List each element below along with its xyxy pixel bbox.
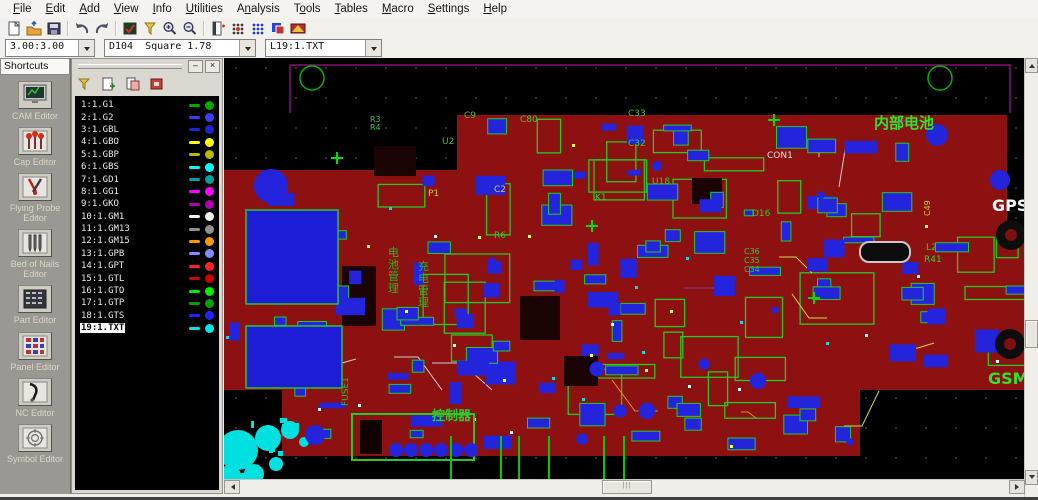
nc-editor-icon	[18, 378, 52, 406]
highlight-layer-icon[interactable]	[75, 76, 94, 92]
arrow-up-icon	[1029, 61, 1035, 68]
layer-draw-color-swatch[interactable]	[189, 265, 200, 268]
layer-row[interactable]: 15:1.GTL	[75, 272, 219, 284]
pcb-label: 充电管理	[418, 259, 429, 309]
scroll-left-button[interactable]	[224, 480, 240, 494]
layer-name[interactable]: 19:1.TXT	[80, 323, 125, 333]
menu-bar: FileEditAddViewInfoUtilitiesAnalysisTool…	[0, 0, 1038, 19]
shortcuts-sidebar: Shortcuts CAM Editor Cap Editor Flying P…	[0, 58, 71, 494]
menu-item[interactable]: Add	[72, 1, 106, 17]
layer-draw-color-swatch[interactable]	[189, 116, 200, 119]
layer-name[interactable]: 13:1.GPB	[80, 249, 125, 259]
layer-draw-color-swatch[interactable]	[189, 190, 200, 193]
sidebar-item-label: CAM Editor	[12, 111, 58, 121]
layer-visibility-dot[interactable]	[205, 299, 214, 308]
layers-panel-titlebar[interactable]: – ×	[72, 59, 222, 73]
cam-editor-icon	[18, 81, 52, 109]
active-layer-value[interactable]: L19:1.TXT	[266, 40, 365, 56]
layer-row[interactable]: 10:1.GM1	[75, 211, 219, 223]
layer-row[interactable]: 5:1.GBP	[75, 149, 219, 161]
menu-item[interactable]: Settings	[421, 1, 477, 17]
sidebar-item-bed-of-nails-editor[interactable]: Bed of Nails Editor	[0, 229, 70, 279]
layer-draw-color-swatch[interactable]	[189, 166, 200, 169]
layer-visibility-dot[interactable]	[205, 200, 214, 209]
chevron-down-icon	[84, 47, 90, 54]
pcb-label: U18	[652, 177, 670, 187]
menu-item[interactable]: Tables	[328, 1, 375, 17]
layer-name[interactable]: 15:1.GTL	[80, 274, 125, 284]
arrow-down-icon	[1029, 475, 1035, 482]
pcb-label: L2	[926, 243, 937, 253]
menu-item[interactable]: Info	[146, 1, 179, 17]
layer-name[interactable]: 1:1.G1	[80, 100, 115, 110]
pcb-label: CON1	[767, 151, 793, 161]
pcb-label: C36	[744, 247, 760, 256]
vertical-scrollbar[interactable]	[1024, 58, 1038, 497]
layer-draw-color-swatch[interactable]	[189, 252, 200, 255]
layer-draw-color-swatch[interactable]	[189, 153, 200, 156]
layer-row[interactable]: 2:1.G2	[75, 111, 219, 123]
layer-visibility-dot[interactable]	[205, 125, 214, 134]
redo-icon[interactable]	[92, 19, 112, 37]
layer-name[interactable]: 3:1.GBL	[80, 125, 120, 135]
layer-row[interactable]: 12:1.GM15	[75, 235, 219, 247]
symbol-editor-icon	[18, 424, 52, 452]
sidebar-item-label: NC Editor	[15, 408, 54, 418]
sidebar-item-flying-probe-editor[interactable]: Flying Probe Editor	[0, 173, 70, 223]
scroll-up-button[interactable]	[1025, 58, 1038, 73]
layer-row[interactable]: 19:1.TXT	[75, 322, 219, 334]
layer-draw-color-swatch[interactable]	[189, 290, 200, 293]
panel-minimize-button[interactable]: –	[188, 60, 203, 73]
menu-item[interactable]: Utilities	[179, 1, 230, 17]
layer-visibility-dot[interactable]	[205, 150, 214, 159]
layer-draw-color-swatch[interactable]	[189, 302, 200, 305]
layer-name[interactable]: 14:1.GPT	[80, 261, 125, 271]
layer-visibility-dot[interactable]	[205, 175, 214, 184]
layer-draw-color-swatch[interactable]	[189, 228, 200, 231]
menu-item[interactable]: Edit	[39, 1, 73, 17]
bed-of-nails-editor-icon	[18, 229, 52, 257]
layer-name[interactable]: 11:1.GM13	[80, 224, 131, 234]
layers-panel-toolbar	[72, 73, 222, 97]
add-layer-icon[interactable]	[99, 76, 118, 92]
layer-row[interactable]: 14:1.GPT	[75, 260, 219, 272]
layer-draw-color-swatch[interactable]	[189, 104, 200, 107]
chevron-down-icon	[245, 47, 251, 54]
pcb-label: 内部电池	[874, 114, 934, 132]
cam-application-window: FileEditAddViewInfoUtilitiesAnalysisTool…	[0, 0, 1038, 500]
sidebar-item-label: Flying Probe Editor	[2, 203, 68, 223]
panel-editor-icon	[18, 332, 52, 360]
zoom-ratio-dropdown-button[interactable]	[78, 40, 94, 56]
horizontal-scrollbar[interactable]: |||	[224, 479, 1025, 494]
layer-name[interactable]: 10:1.GM1	[80, 212, 125, 222]
snap-grid-icon[interactable]	[228, 19, 248, 37]
save-icon[interactable]	[44, 19, 64, 37]
status-combo-row: 3.00:3.00 D104 Square 1.78 L19:1.TXT	[0, 38, 1038, 59]
layer-row[interactable]: 3:1.GBL	[75, 124, 219, 136]
layer-visibility-dot[interactable]	[205, 249, 214, 258]
sidebar-item-part-editor[interactable]: Part Editor	[0, 285, 70, 325]
thumb-grip-icon: |||	[603, 481, 651, 491]
layer-row[interactable]: 9:1.GKO	[75, 198, 219, 210]
panel-grip[interactable]	[78, 64, 182, 69]
menu-item[interactable]: Tools	[287, 1, 328, 17]
active-layer-dropdown-button[interactable]	[365, 40, 381, 56]
pcb-label: C33	[628, 109, 646, 119]
board-layer-icon[interactable]	[208, 19, 228, 37]
layer-name[interactable]: 5:1.GBP	[80, 150, 120, 160]
layer-name[interactable]: 2:1.G2	[80, 113, 115, 123]
main-toolbar	[0, 18, 1038, 39]
layer-draw-color-swatch[interactable]	[189, 277, 200, 280]
layer-visibility-dot[interactable]	[205, 287, 214, 296]
layer-row[interactable]: 13:1.GPB	[75, 248, 219, 260]
zoom-ratio-combo[interactable]: 3.00:3.00	[5, 39, 95, 57]
highlight-icon[interactable]	[140, 19, 160, 37]
sidebar-item-label: Panel Editor	[10, 362, 59, 372]
layer-row[interactable]: 7:1.GD1	[75, 173, 219, 185]
pcb-label: C34	[744, 265, 760, 274]
pcb-label: U2	[442, 137, 454, 147]
part-editor-icon	[18, 285, 52, 313]
pcb-label: GSM	[988, 369, 1026, 388]
sidebar-item-label: Cap Editor	[14, 157, 57, 167]
sidebar-item-label: Bed of Nails Editor	[2, 259, 68, 279]
pcb-label: GPS	[992, 196, 1026, 215]
pcb-label: C9	[464, 111, 476, 121]
dcode-combo[interactable]: D104 Square 1.78	[104, 39, 256, 57]
pcb-label: K1	[595, 193, 607, 203]
pcb-label: R4	[370, 123, 381, 132]
layer-row[interactable]: 11:1.GM13	[75, 223, 219, 235]
dcode-value[interactable]: D104 Square 1.78	[105, 40, 239, 56]
remove-layer-icon[interactable]	[147, 76, 166, 92]
layer-name[interactable]: 6:1.GBS	[80, 162, 120, 172]
layer-visibility-dot[interactable]	[205, 101, 214, 110]
dot-grid-icon[interactable]	[248, 19, 268, 37]
pcb-drawing: 内部电池GPSGSM控制器FUSE1CON1电池管理充电管理C80C9C33C3…	[224, 58, 1026, 483]
sidebar-item-cam-editor[interactable]: CAM Editor	[0, 81, 70, 121]
layer-name[interactable]: 12:1.GM15	[80, 236, 131, 246]
layer-name[interactable]: 17:1.GTP	[80, 298, 125, 308]
flying-probe-editor-icon	[18, 173, 52, 201]
pcb-label: C2	[494, 185, 506, 195]
layer-visibility-dot[interactable]	[205, 274, 214, 283]
layer-draw-color-swatch[interactable]	[189, 128, 200, 131]
layer-visibility-dot[interactable]	[205, 138, 214, 147]
chevron-down-icon	[371, 47, 377, 54]
layer-row[interactable]: 16:1.GTO	[75, 285, 219, 297]
layer-draw-color-swatch[interactable]	[189, 215, 200, 218]
pcb-label: C35	[744, 256, 760, 265]
zoom-out-icon[interactable]	[180, 19, 200, 37]
layer-visibility-dot[interactable]	[205, 113, 214, 122]
layer-visibility-dot[interactable]	[205, 212, 214, 221]
menu-item[interactable]: Macro	[375, 1, 421, 17]
layer-visibility-dot[interactable]	[205, 237, 214, 246]
menu-item[interactable]: View	[107, 1, 146, 17]
layer-visibility-dot[interactable]	[205, 225, 214, 234]
layer-draw-color-swatch[interactable]	[189, 141, 200, 144]
layer-name[interactable]: 8:1.GG1	[80, 187, 120, 197]
arrow-right-icon	[1015, 484, 1022, 490]
zoom-ratio-value[interactable]: 3.00:3.00	[6, 40, 78, 56]
shortcuts-header: Shortcuts	[0, 58, 70, 75]
menu-item[interactable]: Analysis	[230, 1, 287, 17]
layer-draw-color-swatch[interactable]	[189, 314, 200, 317]
layer-draw-color-swatch[interactable]	[189, 203, 200, 206]
layer-row[interactable]: 6:1.GBS	[75, 161, 219, 173]
layer-visibility-dot[interactable]	[205, 324, 214, 333]
layer-colors-icon[interactable]	[268, 19, 288, 37]
layer-list: 1:1.G1 2:1.G2 3:1.GBL	[75, 96, 219, 490]
layer-name[interactable]: 18:1.GTS	[80, 311, 125, 321]
layer-name[interactable]: 4:1.GBO	[80, 137, 120, 147]
layer-draw-color-swatch[interactable]	[189, 178, 200, 181]
layer-visibility-dot[interactable]	[205, 311, 214, 320]
cap-editor-icon	[18, 127, 52, 155]
sidebar-item-label: Symbol Editor	[7, 454, 63, 464]
pcb-canvas[interactable]: 内部电池GPSGSM控制器FUSE1CON1电池管理充电管理C80C9C33C3…	[224, 58, 1026, 483]
layer-draw-color-swatch[interactable]	[189, 327, 200, 330]
layer-row[interactable]: 18:1.GTS	[75, 310, 219, 322]
sidebar-item-cap-editor[interactable]: Cap Editor	[0, 127, 70, 167]
copy-layer-icon[interactable]	[123, 76, 142, 92]
layer-visibility-dot[interactable]	[205, 262, 214, 271]
pcb-label: R41	[924, 255, 942, 265]
panel-close-button[interactable]: ×	[205, 60, 220, 73]
zoom-in-icon[interactable]	[160, 19, 180, 37]
layer-row[interactable]: 1:1.G1	[75, 99, 219, 111]
active-layer-combo[interactable]: L19:1.TXT	[265, 39, 382, 57]
layers-panel: – × 1:1.G1 2:1.G2	[71, 58, 223, 494]
layer-name[interactable]: 7:1.GD1	[80, 175, 120, 185]
layer-draw-color-swatch[interactable]	[189, 240, 200, 243]
menu-item[interactable]: File	[6, 1, 39, 17]
pcb-label: 电池管理	[388, 246, 399, 295]
arrow-left-icon	[228, 484, 235, 490]
scroll-right-button[interactable]	[1009, 480, 1025, 494]
dcode-dropdown-button[interactable]	[239, 40, 255, 56]
sidebar-item-nc-editor[interactable]: NC Editor	[0, 378, 70, 418]
scroll-down-button[interactable]	[1025, 470, 1038, 485]
layer-visibility-dot[interactable]	[205, 187, 214, 196]
pcb-label: C80	[520, 115, 538, 125]
pcb-label: FUSE1	[341, 377, 351, 406]
sidebar-item-label: Part Editor	[14, 315, 57, 325]
main-view-area: 内部电池GPSGSM控制器FUSE1CON1电池管理充电管理C80C9C33C3…	[224, 58, 1038, 494]
menu-item[interactable]: Help	[476, 1, 514, 17]
pcb-label: P1	[428, 189, 439, 199]
undo-icon[interactable]	[72, 19, 92, 37]
film-box-icon[interactable]	[288, 19, 308, 37]
pcb-label: R6	[494, 231, 506, 241]
horizontal-scroll-thumb[interactable]: |||	[602, 480, 652, 494]
new-file-icon[interactable]	[4, 19, 24, 37]
pcb-label: C49	[923, 200, 932, 216]
redraw-icon[interactable]	[120, 19, 140, 37]
layer-row[interactable]: 8:1.GG1	[75, 186, 219, 198]
pcb-label: C32	[628, 139, 646, 149]
sidebar-item-symbol-editor[interactable]: Symbol Editor	[0, 424, 70, 464]
layer-row[interactable]: 4:1.GBO	[75, 136, 219, 148]
pcb-label: D16	[752, 209, 771, 219]
vertical-scroll-thumb[interactable]	[1025, 320, 1038, 348]
sidebar-item-panel-editor[interactable]: Panel Editor	[0, 332, 70, 372]
layer-name[interactable]: 9:1.GKO	[80, 199, 120, 209]
import-icon[interactable]	[24, 19, 44, 37]
pcb-label: 控制器	[432, 408, 472, 424]
layer-name[interactable]: 16:1.GTO	[80, 286, 125, 296]
layer-row[interactable]: 17:1.GTP	[75, 297, 219, 309]
layer-visibility-dot[interactable]	[205, 163, 214, 172]
